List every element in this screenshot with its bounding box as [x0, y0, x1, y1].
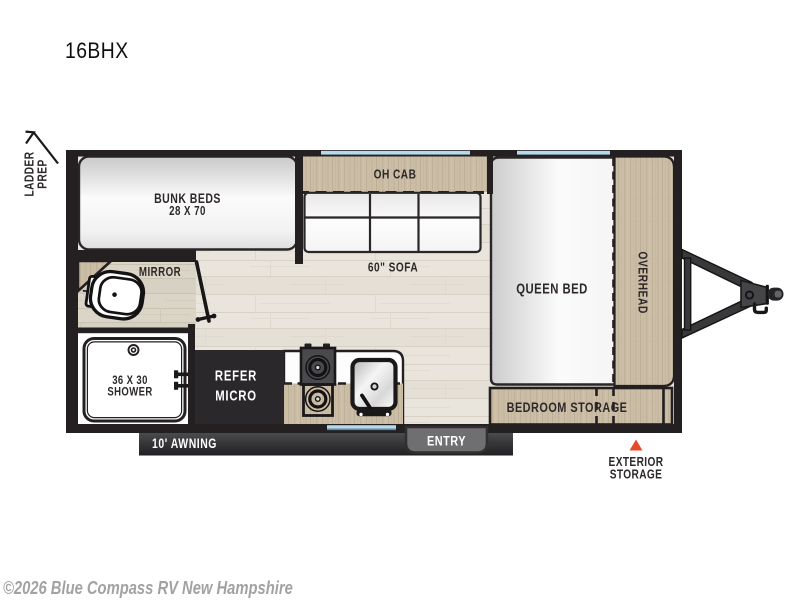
svg-text:OH CAB: OH CAB	[374, 167, 417, 181]
svg-text:STORAGE: STORAGE	[610, 467, 663, 481]
svg-text:QUEEN BED: QUEEN BED	[516, 280, 587, 297]
svg-text:28 X 70: 28 X 70	[169, 205, 206, 218]
svg-text:SHOWER: SHOWER	[107, 385, 152, 398]
svg-text:60" SOFA: 60" SOFA	[368, 260, 418, 274]
svg-text:MIRROR: MIRROR	[139, 266, 181, 279]
svg-text:OVERHEAD: OVERHEAD	[635, 252, 649, 314]
svg-text:PREP: PREP	[35, 159, 49, 188]
svg-text:BEDROOM STORAGE: BEDROOM STORAGE	[507, 400, 628, 416]
svg-text:REFER: REFER	[215, 367, 257, 384]
svg-text:MICRO: MICRO	[215, 387, 257, 404]
svg-text:10' AWNING: 10' AWNING	[152, 436, 217, 452]
svg-text:ENTRY: ENTRY	[427, 433, 466, 449]
